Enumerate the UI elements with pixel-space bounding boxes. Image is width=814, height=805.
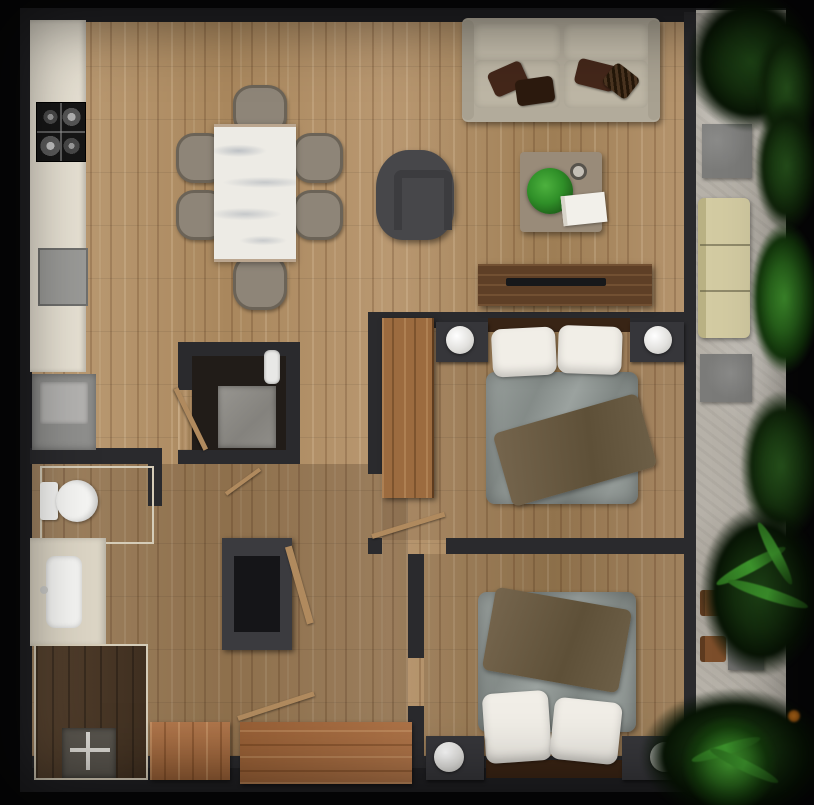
outdoor-sofa-seam-2 — [700, 290, 750, 292]
sofa-back-cushion-left — [474, 24, 560, 60]
wall-bedroom1-left — [368, 312, 382, 474]
washing-machine-lid — [40, 382, 88, 424]
outdoor-sofa-seam-1 — [700, 244, 750, 246]
wall-bedroom2-left-a — [408, 554, 424, 658]
storage-cabinet-interior — [234, 556, 280, 632]
wardrobe — [382, 318, 434, 498]
coffee-cup — [570, 163, 587, 180]
bed1-pillow-right — [557, 325, 623, 375]
sofa-armrest-left — [462, 20, 474, 120]
dining-table — [214, 124, 296, 262]
outdoor-sofa — [698, 198, 750, 338]
dining-chair-bottom — [233, 254, 287, 310]
coffee-book — [561, 192, 608, 226]
toilet-bowl — [56, 480, 98, 522]
dining-chair-right-2 — [293, 190, 343, 240]
utility-wall-panel — [264, 350, 280, 384]
shower-pipe-vertical — [86, 732, 90, 770]
plant-foliage-right-2 — [750, 222, 814, 374]
plant-foliage-right-1 — [754, 100, 814, 232]
bed1-pillow-left — [491, 326, 557, 377]
balcony-paver-2 — [700, 354, 752, 402]
kitchen-counter — [30, 20, 86, 372]
vanity-sink — [46, 556, 82, 628]
armchair-seat — [394, 170, 452, 230]
dining-chair-right-1 — [293, 133, 343, 183]
plant-accent-orange — [788, 710, 800, 722]
kitchen-sink — [38, 248, 88, 306]
wall-window-right — [684, 12, 696, 790]
bed1-lamp-left — [446, 326, 474, 354]
wood-sideboard-large — [240, 722, 412, 784]
wall-bedrooms-divider — [446, 538, 684, 554]
vanity-faucet — [40, 586, 48, 594]
wall-divider-stub — [368, 538, 382, 554]
bed2-pillow-left — [482, 690, 553, 764]
balcony-paver-1 — [702, 124, 752, 178]
bed1-lamp-right — [644, 326, 672, 354]
shower-pipe-horizontal — [70, 748, 110, 752]
utility-appliance — [218, 386, 276, 448]
sofa-back-cushion-right — [564, 24, 648, 60]
tv — [506, 278, 606, 286]
bed2-pillow-right — [549, 697, 623, 766]
wood-sideboard-small — [150, 722, 230, 780]
sofa-armrest-right — [648, 20, 660, 120]
sofa-pillow-2 — [514, 75, 555, 106]
floorplan-render — [0, 0, 814, 805]
wall-bath-north — [30, 448, 162, 464]
bed2-lamp-left — [434, 742, 464, 772]
gas-cooktop — [36, 102, 86, 162]
